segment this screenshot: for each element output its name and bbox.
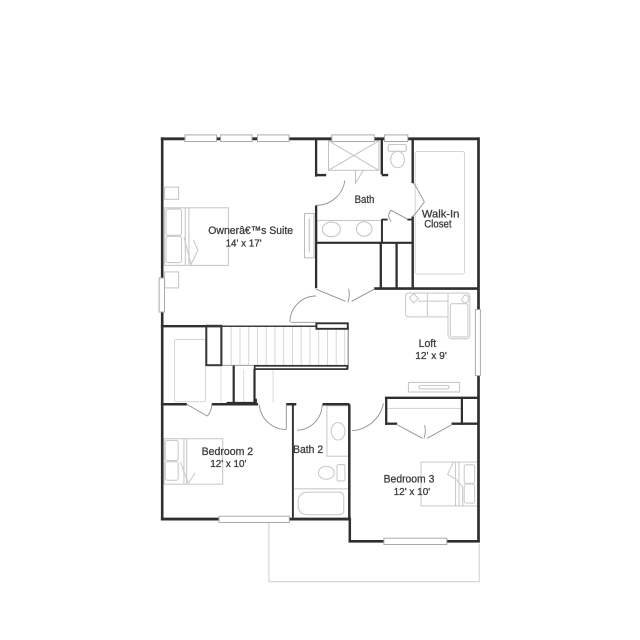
svg-text:Closet: Closet — [424, 219, 451, 231]
svg-text:Bath 2: Bath 2 — [293, 444, 323, 456]
svg-text:Ownerâ€™s Suite: Ownerâ€™s Suite — [208, 225, 293, 237]
svg-text:Loft: Loft — [419, 338, 437, 350]
svg-text:Bedroom 3: Bedroom 3 — [384, 473, 435, 485]
svg-text:12' x 10': 12' x 10' — [210, 459, 246, 470]
svg-text:14' x 17': 14' x 17' — [226, 238, 262, 249]
svg-text:Bedroom 2: Bedroom 2 — [202, 446, 254, 458]
svg-text:12' x 9': 12' x 9' — [415, 351, 447, 362]
svg-text:Bath: Bath — [355, 194, 375, 206]
svg-text:12' x 10': 12' x 10' — [394, 487, 431, 498]
